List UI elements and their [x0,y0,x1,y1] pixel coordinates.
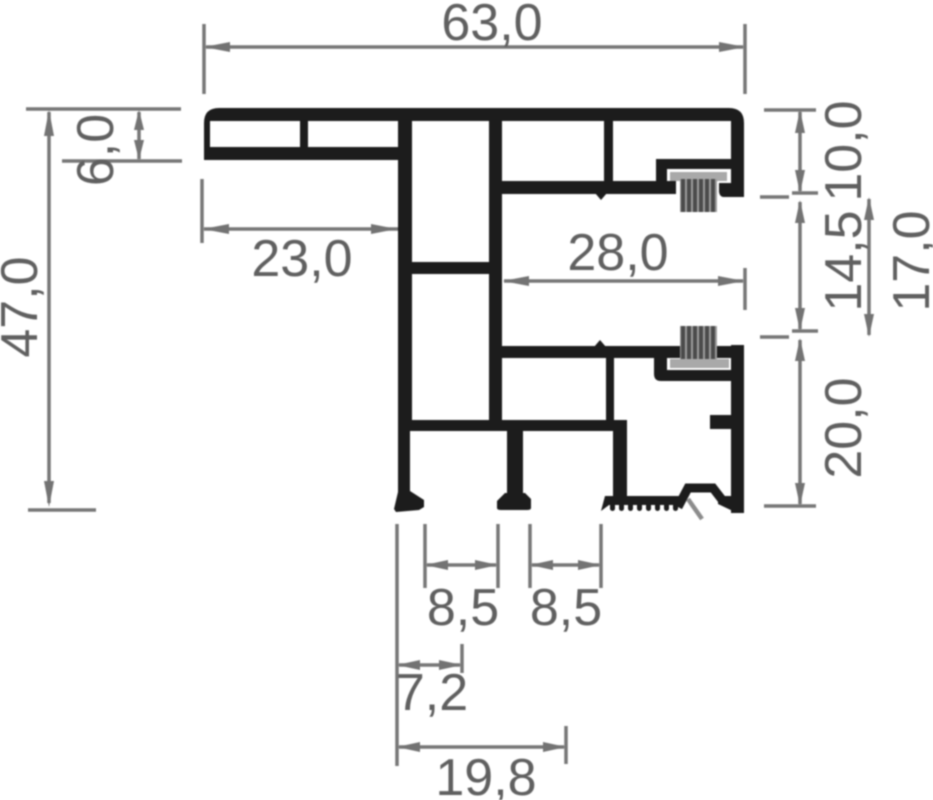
svg-text:47,0: 47,0 [0,256,49,357]
svg-text:6,0: 6,0 [67,114,125,186]
svg-text:8,5: 8,5 [530,579,602,637]
svg-text:7,2: 7,2 [396,664,468,722]
svg-text:10,0: 10,0 [815,100,873,201]
svg-text:28,0: 28,0 [567,224,668,282]
svg-text:17,0: 17,0 [883,210,933,311]
svg-text:63,0: 63,0 [441,0,542,52]
svg-text:19,8: 19,8 [435,749,536,800]
svg-text:8,5: 8,5 [427,579,499,637]
svg-text:14,5: 14,5 [815,210,873,311]
svg-text:23,0: 23,0 [251,230,352,288]
svg-text:20,0: 20,0 [815,377,873,478]
